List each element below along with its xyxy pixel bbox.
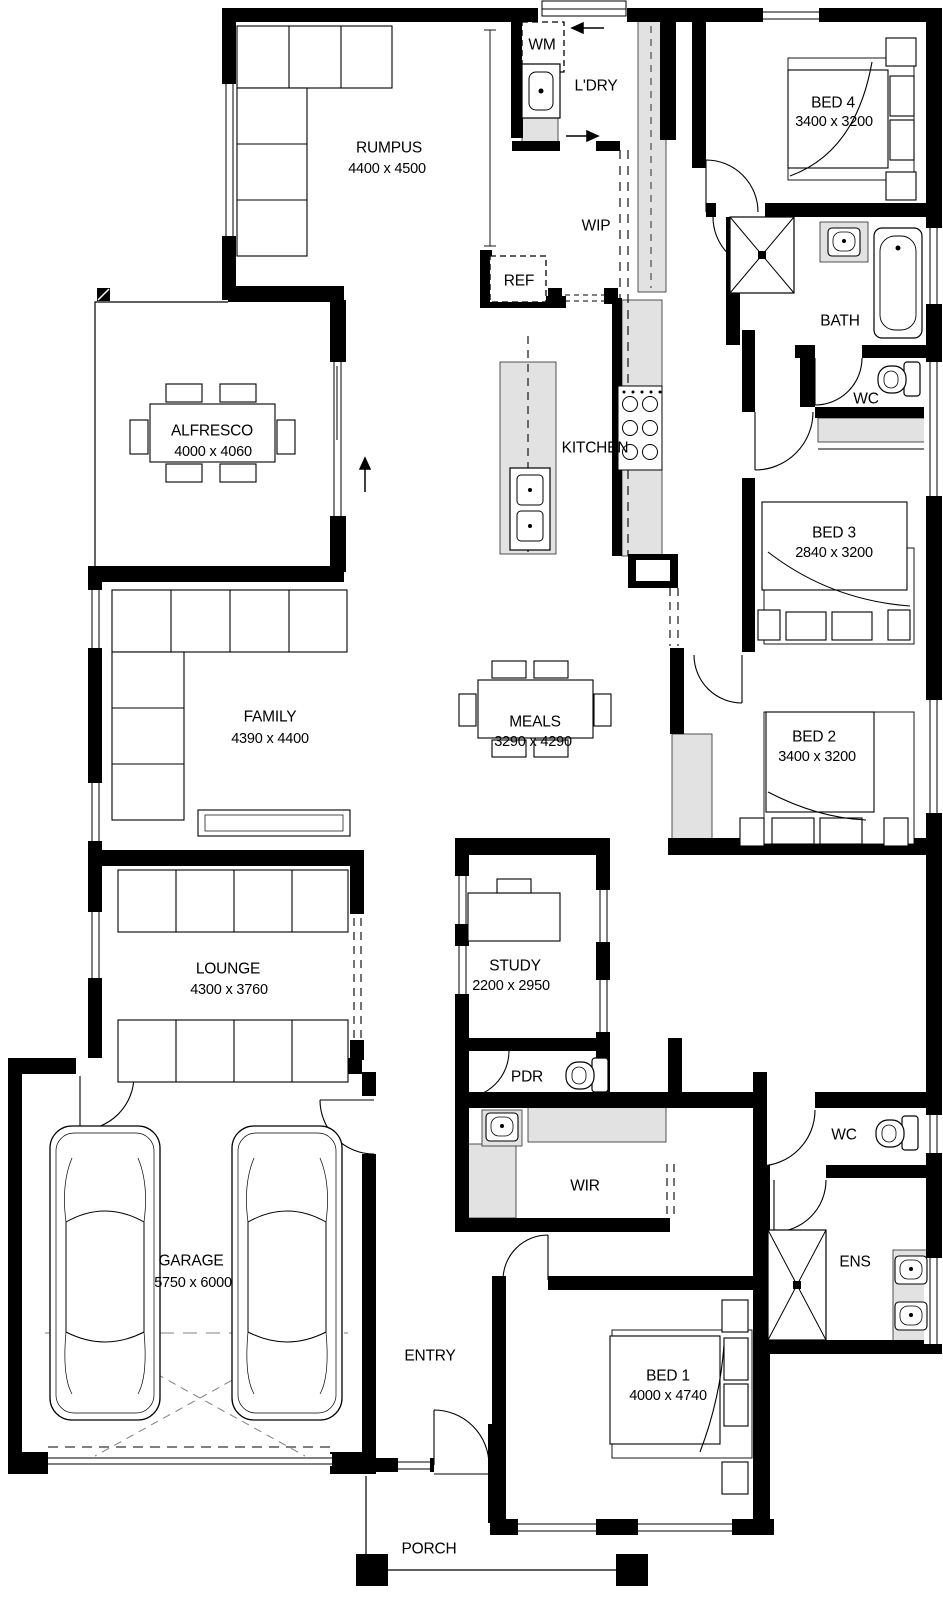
alfresco-door-arrow-icon bbox=[360, 458, 370, 492]
room-label-bath: BATH bbox=[820, 313, 859, 329]
room-label-bed3: BED 3 bbox=[812, 525, 856, 541]
room-label-garage: GARAGE bbox=[158, 1253, 223, 1269]
room-label-wip: WIP bbox=[582, 218, 611, 234]
room-dims-rumpus: 4400 x 4500 bbox=[348, 162, 426, 177]
basin-icon bbox=[895, 1256, 927, 1284]
room-dims-bed1: 4000 x 4740 bbox=[629, 1389, 707, 1404]
toilet-icon bbox=[878, 362, 920, 396]
room-label-wir: WIR bbox=[570, 1178, 600, 1194]
room-dims-bed2: 3400 x 3200 bbox=[778, 750, 856, 765]
room-label-alfresco: ALFRESCO bbox=[171, 423, 253, 439]
fixture-label-wm: WM bbox=[528, 37, 555, 53]
room-label-wc-bottom: WC bbox=[831, 1127, 856, 1143]
shower-icon bbox=[730, 217, 794, 293]
basin-icon bbox=[895, 1302, 927, 1330]
alfresco-sliding-door bbox=[330, 362, 346, 516]
room-label-entry: ENTRY bbox=[404, 1348, 455, 1364]
basin-icon bbox=[486, 1113, 518, 1141]
room-dims-study: 2200 x 2950 bbox=[472, 979, 550, 994]
room-label-bed4: BED 4 bbox=[811, 95, 855, 111]
room-label-kitchen: KITCHEN bbox=[562, 440, 629, 456]
room-label-family: FAMILY bbox=[244, 709, 297, 725]
room-dims-bed4: 3400 x 3200 bbox=[795, 115, 873, 130]
bathtub-icon bbox=[874, 228, 922, 338]
wip-entry-arrow-icon bbox=[566, 131, 598, 141]
basin-icon bbox=[828, 228, 860, 256]
car-icon bbox=[232, 1126, 342, 1420]
room-label-study: STUDY bbox=[489, 958, 541, 974]
kitchen-sink-icon bbox=[510, 468, 550, 550]
car-icon bbox=[50, 1126, 160, 1420]
floor-plan-drawing bbox=[0, 0, 943, 1600]
room-dims-bed3: 2840 x 3200 bbox=[795, 546, 873, 561]
room-label-laundry: L'DRY bbox=[574, 78, 617, 94]
room-label-porch: PORCH bbox=[402, 1541, 457, 1557]
room-label-bed1: BED 1 bbox=[646, 1368, 690, 1384]
room-label-pdr: PDR bbox=[511, 1069, 543, 1085]
room-label-meals: MEALS bbox=[509, 714, 561, 730]
room-label-lounge: LOUNGE bbox=[196, 961, 260, 977]
room-dims-meals: 3290 x 4290 bbox=[494, 735, 572, 750]
toilet-icon bbox=[566, 1058, 608, 1092]
sofa-icon bbox=[118, 870, 348, 932]
desk-icon bbox=[468, 879, 560, 941]
toilet-icon bbox=[876, 1116, 918, 1150]
sofa-icon bbox=[118, 1020, 348, 1082]
shower-icon bbox=[768, 1230, 826, 1340]
room-dims-alfresco: 4000 x 4060 bbox=[174, 445, 252, 460]
cooktop-icon bbox=[618, 386, 662, 470]
room-label-wc-top: WC bbox=[853, 391, 878, 407]
room-dims-family: 4390 x 4400 bbox=[231, 732, 309, 747]
room-dims-garage: 5750 x 6000 bbox=[154, 1276, 232, 1291]
laundry-exit-arrow-icon bbox=[572, 23, 604, 33]
floor-plan-page: RUMPUS 4400 x 4500 WM L'DRY BED 4 3400 x… bbox=[0, 0, 943, 1600]
fixture-label-ref: REF bbox=[504, 273, 534, 289]
room-label-bed2: BED 2 bbox=[792, 729, 836, 745]
sofa-icon bbox=[112, 590, 347, 820]
laundry-trough-icon bbox=[522, 64, 560, 118]
room-label-rumpus: RUMPUS bbox=[356, 140, 422, 156]
tv-unit-icon bbox=[198, 810, 350, 836]
room-dims-lounge: 4300 x 3760 bbox=[190, 983, 268, 998]
room-label-ens: ENS bbox=[839, 1254, 870, 1270]
